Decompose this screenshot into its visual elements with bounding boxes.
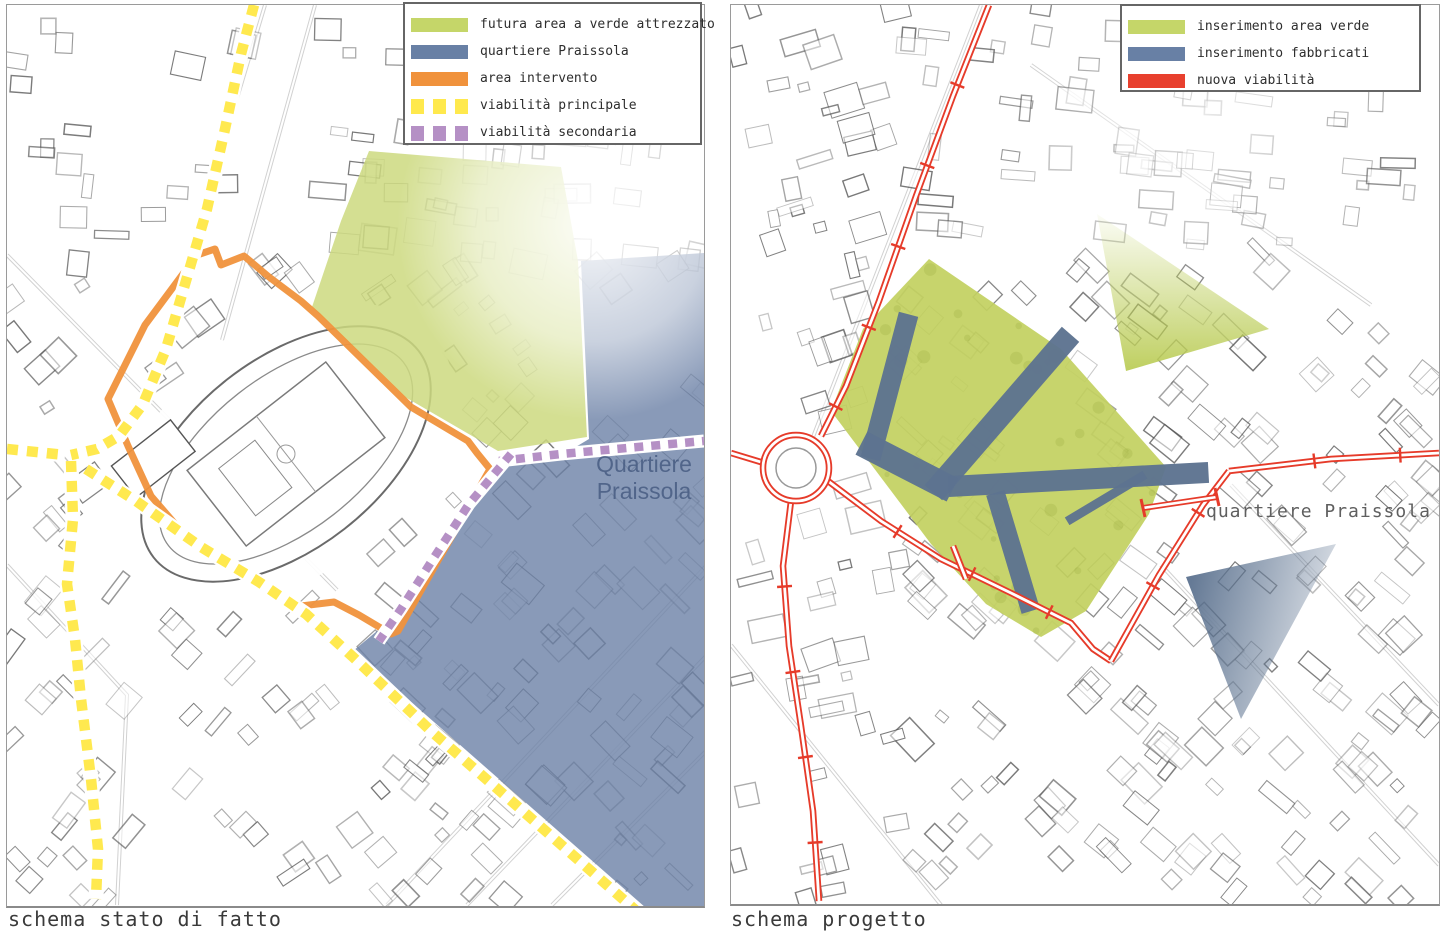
solid-area-swatch	[411, 18, 468, 32]
solid-area-swatch	[411, 72, 468, 86]
legend-item-label: nuova viabilità	[1197, 73, 1314, 88]
legend-item: nuova viabilità	[1128, 67, 1419, 94]
caption-stato-di-fatto: schema stato di fatto	[8, 907, 282, 931]
legend-item: area intervento	[411, 65, 700, 92]
legend-item: inserimento area verde	[1128, 13, 1419, 40]
legend-item-label: viabilità secondaria	[480, 125, 637, 140]
solid-area-swatch	[411, 45, 468, 59]
legend-item: futura area a verde attrezzato	[411, 11, 700, 38]
legend-item-label: inserimento area verde	[1197, 19, 1369, 34]
quartiere-label-line2: Praissola	[586, 478, 702, 505]
solid-area-swatch	[1128, 74, 1185, 88]
legend-item-label: viabilità principale	[480, 98, 637, 113]
blue-arrow	[1186, 544, 1336, 719]
dashed-line-swatch	[411, 126, 468, 140]
legend-item-label: futura area a verde attrezzato	[480, 17, 715, 32]
dashed-line-swatch	[411, 99, 468, 113]
legend-item-label: area intervento	[480, 71, 597, 86]
legend-item: viabilità principale	[411, 92, 700, 119]
quartiere-label-line1: Quartiere	[586, 451, 702, 478]
urban-plan-figure: futura area a verde attrezzatoquartiere …	[0, 0, 1440, 939]
legend-item: quartiere Praissola	[411, 38, 700, 65]
solid-area-swatch	[1128, 47, 1185, 61]
legend-progetto: inserimento area verdeinserimento fabbri…	[1120, 4, 1421, 92]
quartiere-praissola-label-right: quartiere Praissola	[1206, 501, 1431, 522]
map-progetto	[730, 4, 1440, 906]
legend-item: inserimento fabbricati	[1128, 40, 1419, 67]
legend-item: viabilità secondaria	[411, 119, 700, 146]
quartiere-praissola-label-left: Quartiere Praissola	[586, 451, 702, 505]
legend-item-label: inserimento fabbricati	[1197, 46, 1369, 61]
solid-area-swatch	[1128, 20, 1185, 34]
legend-item-label: quartiere Praissola	[480, 44, 629, 59]
legend-stato-di-fatto: futura area a verde attrezzatoquartiere …	[403, 2, 702, 145]
caption-progetto: schema progetto	[731, 907, 927, 931]
